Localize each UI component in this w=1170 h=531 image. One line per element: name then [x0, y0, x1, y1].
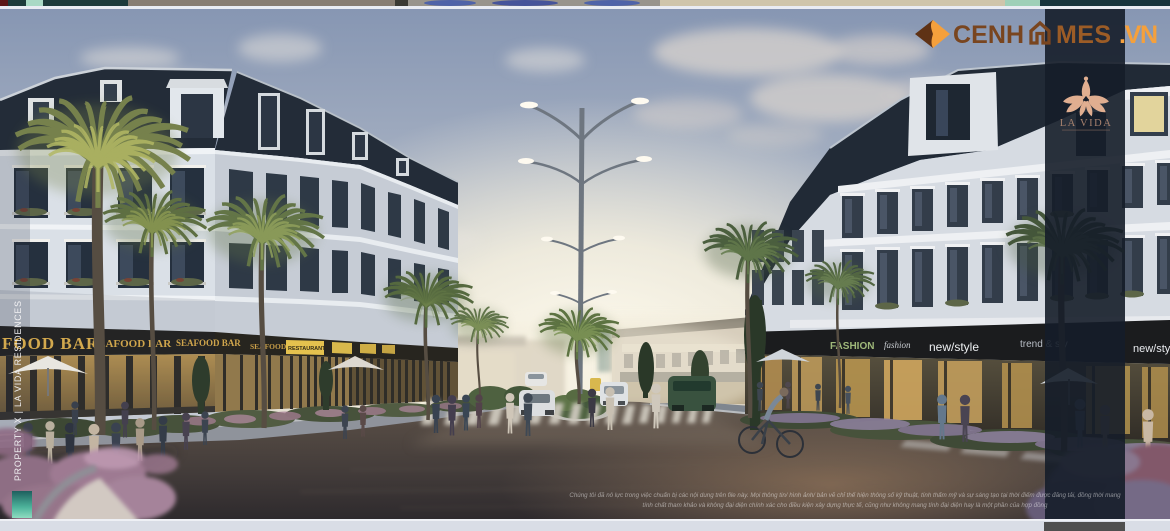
svg-text:tính chất tham khảo và không đ: tính chất tham khảo và không đại diện ch…: [643, 502, 1048, 509]
svg-text:new/style: new/style: [929, 340, 979, 354]
svg-text:FASHION: FASHION: [830, 341, 874, 352]
svg-text:new/styl: new/styl: [1133, 343, 1170, 355]
svg-text:CENH: CENH: [953, 21, 1024, 49]
svg-text:PROPERTY X | LA VIDA RESIDENCE: PROPERTY X | LA VIDA RESIDENCES: [13, 300, 23, 481]
svg-text:LA VIDA: LA VIDA: [1060, 118, 1113, 129]
svg-text:Chúng tôi đã nỗ lực trong việc: Chúng tôi đã nỗ lực trong việc chuẩn bị …: [569, 492, 1121, 499]
svg-text:.VN: .VN: [1119, 21, 1158, 49]
svg-text:RESTAURANT: RESTAURANT: [288, 346, 326, 352]
svg-text:SEAFOOD BAR: SEAFOOD BAR: [176, 338, 241, 348]
svg-text:fashion: fashion: [884, 340, 911, 350]
svg-text:MES: MES: [1056, 21, 1111, 49]
